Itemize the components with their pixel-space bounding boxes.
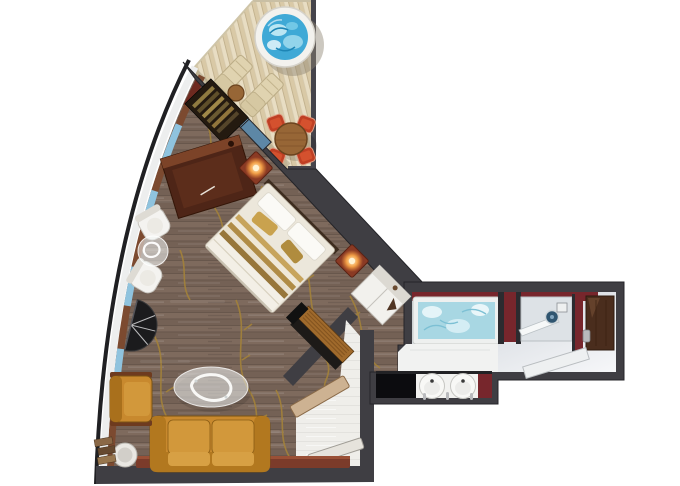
shower	[519, 297, 572, 341]
vanity-alcove	[376, 371, 492, 400]
door-handle	[583, 330, 590, 342]
bathtub	[413, 297, 500, 344]
sofa	[150, 416, 270, 472]
alcove-red-wall	[478, 374, 492, 398]
seat-cushion	[168, 420, 210, 454]
armchair	[110, 372, 152, 426]
faucet-right	[461, 379, 465, 383]
shower-controls	[557, 303, 567, 312]
floor-plan	[0, 0, 680, 486]
entry-right-wall	[360, 330, 374, 482]
bathtub-front-panel	[398, 344, 498, 372]
hot-tub-water	[262, 14, 308, 60]
faucet-left	[430, 379, 434, 383]
door-side-red-wall	[575, 294, 583, 352]
black-counter	[376, 374, 416, 398]
shower-red-wall	[504, 292, 516, 342]
glass-side-table	[138, 236, 168, 266]
coffee-table	[174, 367, 251, 412]
suite-entrance-door	[583, 296, 614, 350]
bathroom	[370, 282, 624, 404]
lamp	[349, 258, 355, 264]
shower-frame-right	[516, 292, 521, 344]
dining-table	[275, 123, 307, 155]
lamp	[253, 165, 259, 171]
shower-frame-left	[498, 292, 504, 344]
round-side-table	[113, 443, 137, 467]
seat-cushion	[212, 420, 254, 454]
